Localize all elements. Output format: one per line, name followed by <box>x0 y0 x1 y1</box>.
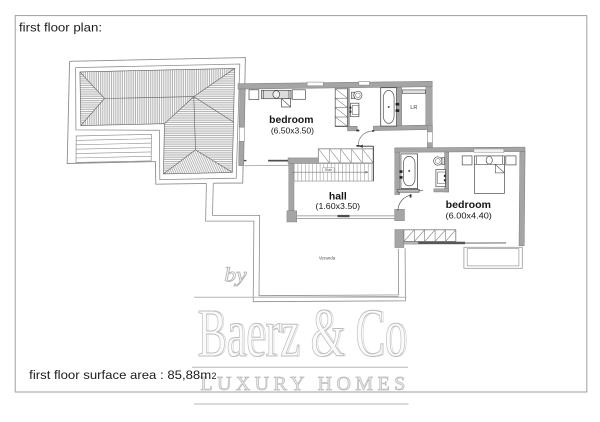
svg-text:Baerz & Co: Baerz & Co <box>198 295 407 371</box>
svg-text:bedroom: bedroom <box>269 115 313 126</box>
svg-text:first floor plan:: first floor plan: <box>19 21 102 35</box>
svg-text:Veranda: Veranda <box>319 256 336 261</box>
svg-text:2: 2 <box>212 371 217 381</box>
svg-text:first floor surface area : 85,: first floor surface area : 85,88m <box>29 368 211 382</box>
svg-text:(6.00x4.40): (6.00x4.40) <box>446 210 492 220</box>
svg-text:(6.50x3.50): (6.50x3.50) <box>271 125 314 135</box>
svg-text:LR: LR <box>410 105 417 111</box>
svg-text:by: by <box>224 265 247 287</box>
svg-text:Stair: Stair <box>325 168 333 172</box>
svg-text:LUXURY HOMES: LUXURY HOMES <box>200 373 409 395</box>
svg-text:(1.60x3.50): (1.60x3.50) <box>316 201 361 211</box>
